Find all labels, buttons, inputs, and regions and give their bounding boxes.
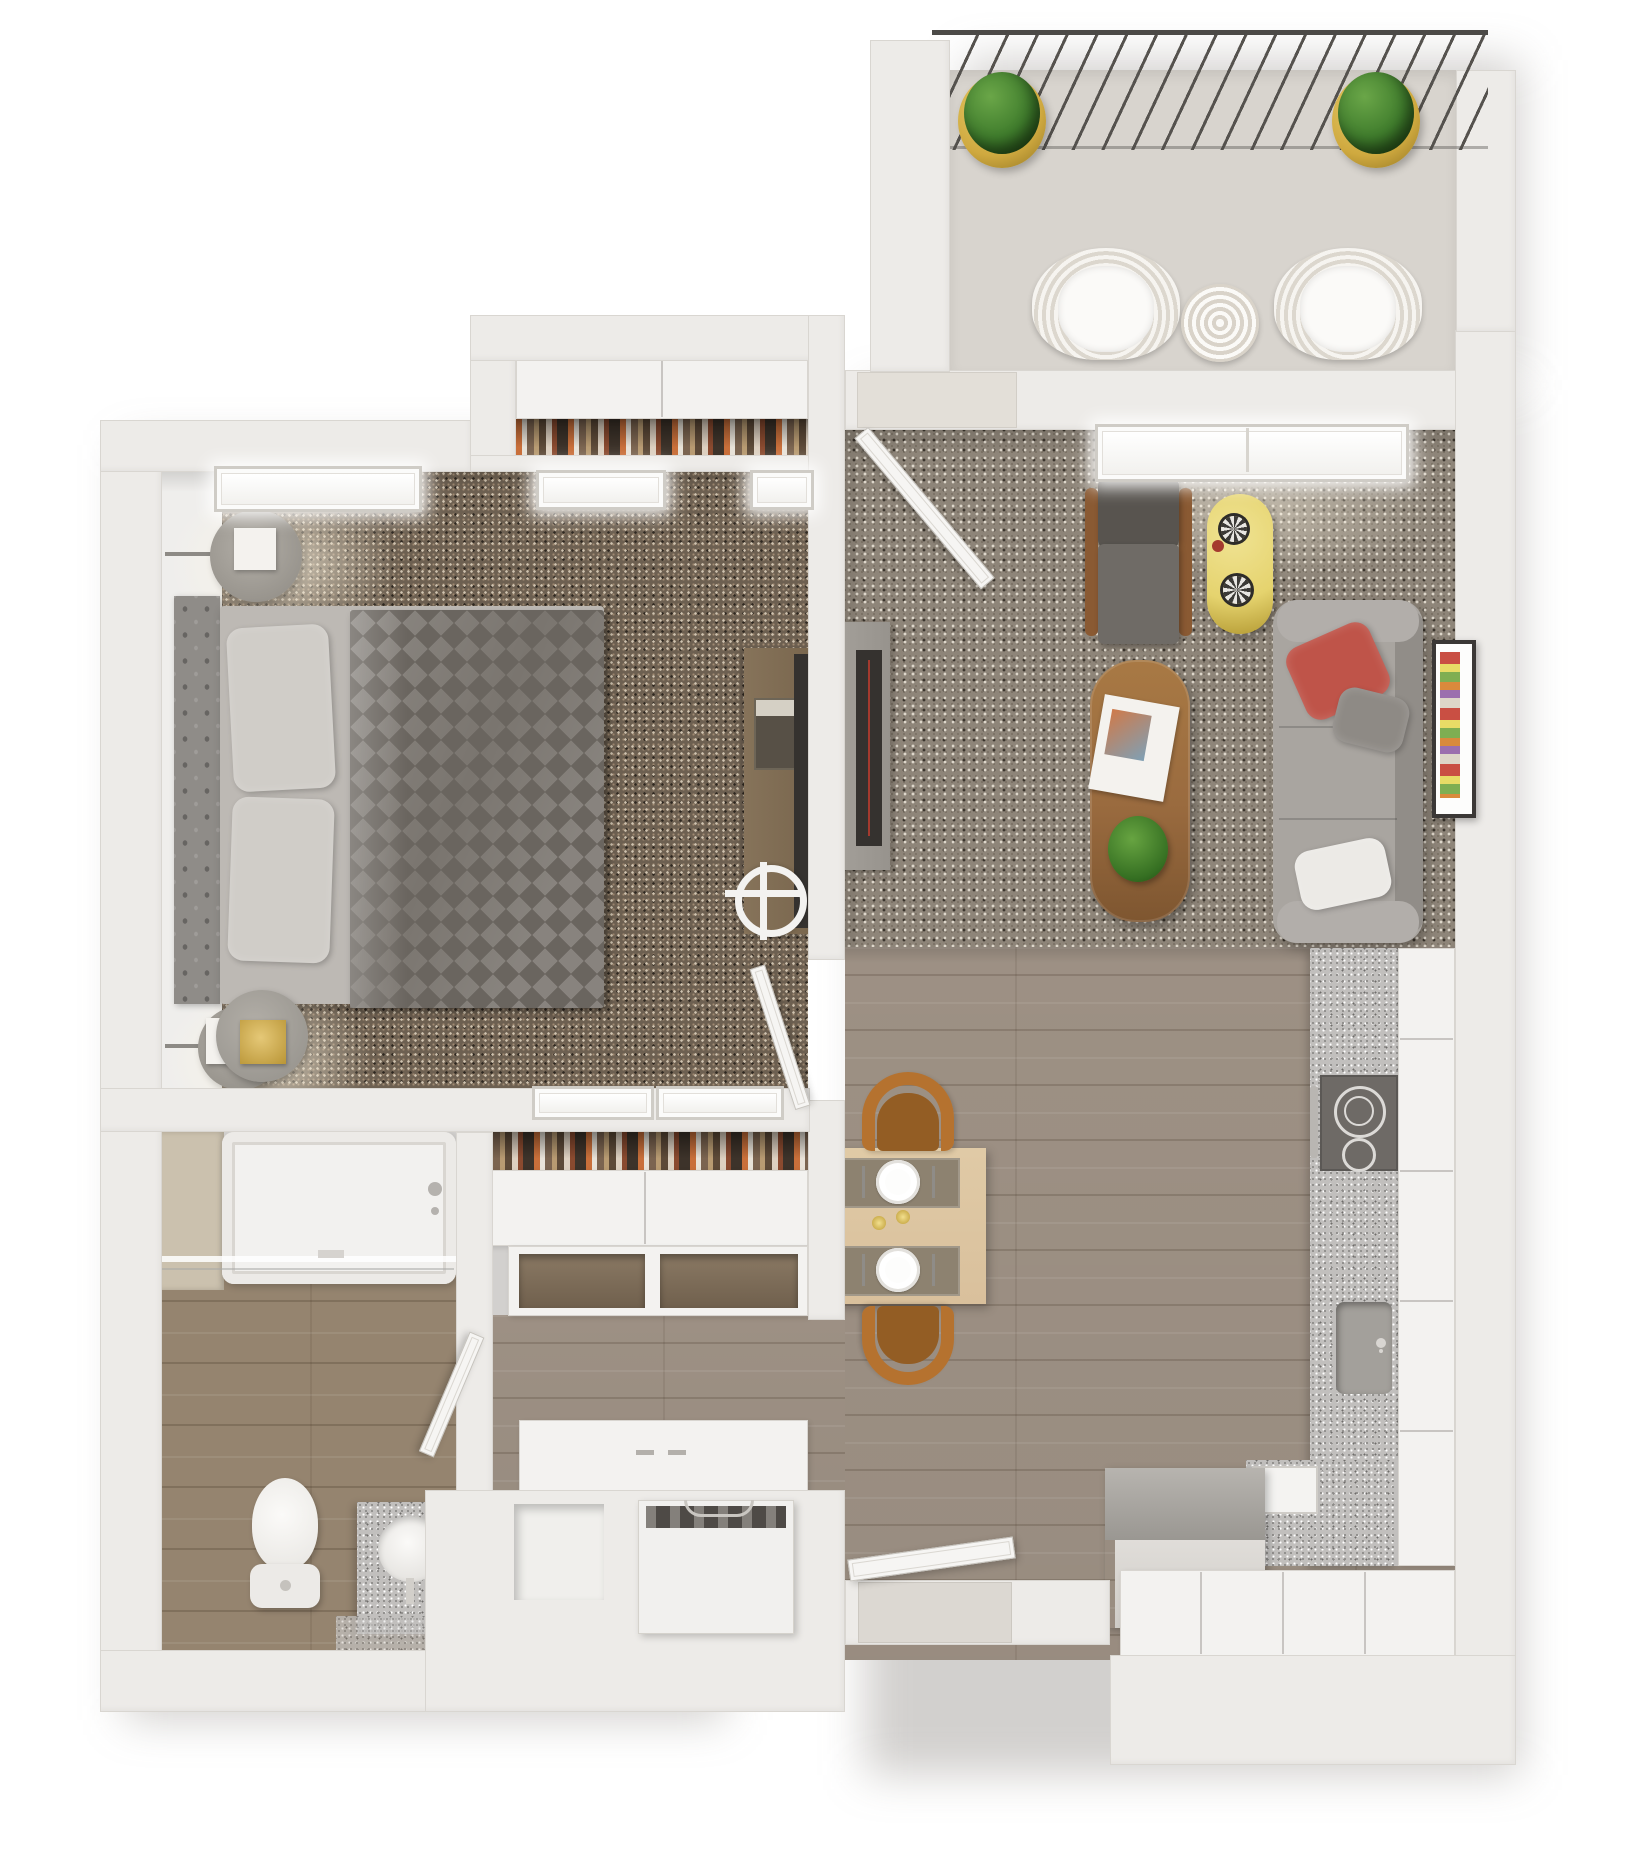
plant-left (964, 72, 1040, 154)
armchair-back (1098, 478, 1179, 548)
coffee-table-plant (1108, 816, 1168, 882)
balcony-chair-right-cushion (1300, 266, 1396, 352)
lower-cab-seam-3 (1364, 1572, 1366, 1654)
hall-cabinet-handle-2 (668, 1450, 686, 1455)
cabinet-run-seam-1 (1400, 1038, 1453, 1040)
hall-cabinet-handle-1 (636, 1450, 654, 1455)
dining-chair-bottom-seat (877, 1306, 939, 1364)
nightstand-lamp (240, 1020, 286, 1064)
wardrobe-seam (661, 359, 663, 417)
cabinet-run-seam-4 (1400, 1430, 1453, 1432)
cutlery-bottom-left (862, 1254, 865, 1286)
stove-burner-large-inner (1344, 1096, 1374, 1126)
plate-bottom (876, 1248, 920, 1292)
sofa-back (1395, 610, 1423, 933)
desk-chair-cross-v (760, 862, 767, 940)
balcony-door-threshold (857, 372, 1017, 428)
plate-top (876, 1160, 920, 1204)
kitchen-sink (1336, 1302, 1392, 1394)
wall-left-outer (100, 420, 162, 1710)
cutlery-top-left (862, 1166, 865, 1198)
cutlery-bottom-right (932, 1254, 935, 1286)
cutlery-top-right (932, 1166, 935, 1198)
dining-chair-top-seat (877, 1093, 939, 1151)
sofa (1273, 600, 1423, 943)
wall-mid-lower (808, 1100, 845, 1320)
living-window (1095, 424, 1409, 482)
stove-burner-small (1342, 1138, 1376, 1172)
entry-threshold (858, 1582, 1012, 1643)
wall-closet-top (470, 315, 845, 361)
bed-pillow-bottom (227, 796, 335, 963)
lower-cab-seam-1 (1200, 1572, 1202, 1654)
toilet-button (280, 1580, 291, 1591)
kitchen-cabinet-run (1398, 948, 1455, 1566)
candle-1 (872, 1216, 886, 1230)
hall-shelf-left (519, 1254, 645, 1308)
bedroom-window-3 (750, 470, 814, 510)
hall-low-cabinet (519, 1420, 808, 1498)
side-table-plate-2 (1223, 576, 1251, 604)
armchair (1085, 478, 1192, 646)
sofa-arm-bottom (1277, 901, 1419, 943)
desk-chair-cross-h (725, 890, 803, 897)
balcony-railing-top-rail (932, 30, 1488, 35)
hall-closet-drawer-seam (644, 1172, 646, 1244)
armchair-seat (1098, 544, 1179, 644)
balcony-chair-left-cushion (1058, 266, 1154, 352)
living-window-divider (1246, 428, 1249, 472)
vanity-faucet (406, 1578, 414, 1604)
armchair-arm-left (1085, 488, 1098, 636)
wall-right-outer (1455, 330, 1516, 1765)
bath-tile-ledge (160, 1132, 224, 1290)
bedroom-window-2 (536, 470, 666, 510)
desk-chair (735, 865, 807, 937)
wall-balcony-stub (870, 40, 950, 372)
cabinet-run-seam-2 (1400, 1170, 1453, 1172)
bed-headboard (174, 596, 220, 1004)
art-frame-print (1440, 652, 1460, 798)
wardrobe-clothes (516, 418, 808, 460)
candle-2 (896, 1210, 910, 1224)
balcony-side-table (1181, 284, 1259, 362)
side-table-cup-red (1212, 540, 1224, 552)
wall-lamp-top-shade (234, 528, 276, 570)
stove-handle (1310, 1086, 1318, 1158)
bed-pillow-top (226, 623, 336, 792)
kitchen-faucet (1376, 1338, 1386, 1348)
floor-plan (0, 0, 1643, 1850)
kitchen-lower-cabinets (1120, 1570, 1455, 1656)
tub-faucet (428, 1182, 442, 1196)
sofa-seam-2 (1279, 818, 1397, 820)
toilet (250, 1478, 322, 1610)
hall-shelf-right (660, 1254, 798, 1308)
shower-glass (160, 1256, 456, 1262)
shower-glass-handle (318, 1250, 344, 1258)
bed-duvet-fold (350, 610, 408, 1008)
hall-closet-clothes (482, 1132, 808, 1170)
washer-lid (684, 1500, 754, 1517)
plant-right (1338, 72, 1414, 154)
lower-cab-seam-2 (1282, 1572, 1284, 1654)
bedroom-vent-2 (656, 1086, 784, 1120)
cabinet-run-seam-3 (1400, 1300, 1453, 1302)
side-table-yellow (1207, 494, 1273, 634)
bedroom-window-1 (214, 466, 422, 512)
wall-bottom-right (1110, 1655, 1516, 1765)
coffee-table-magazine-cover (1104, 709, 1151, 761)
living-tv-edge (868, 660, 870, 836)
toilet-bowl (252, 1478, 318, 1570)
side-table-plate-1 (1221, 516, 1247, 542)
laundry-niche (514, 1504, 604, 1600)
wall-mid-upper (808, 315, 845, 960)
armchair-arm-right (1179, 488, 1192, 636)
bedroom-vent-1 (532, 1086, 654, 1120)
wall-bedroom-top (100, 420, 472, 472)
fridge-top (1105, 1468, 1265, 1540)
